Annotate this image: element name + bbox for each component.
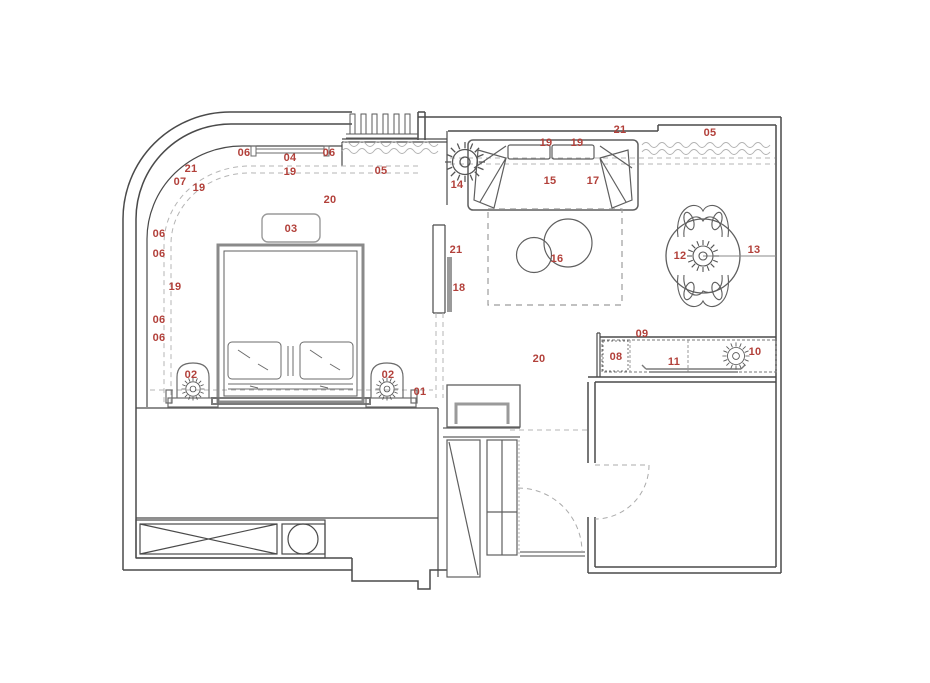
bed — [212, 245, 370, 404]
ceiling-light-icon — [722, 342, 749, 369]
washing-machine — [288, 524, 318, 554]
tv-panel — [447, 257, 452, 312]
dining-chair-bottom — [678, 275, 729, 307]
floor-plan-canvas: 0604061905210719200306061906060202011919… — [0, 0, 930, 683]
nightstand-right — [366, 363, 417, 407]
dining-set — [666, 205, 776, 306]
coffee-tables — [517, 219, 593, 273]
floor-plan-drawing — [0, 0, 930, 683]
kitchen-counter — [602, 340, 776, 372]
tall-cabinet-left — [447, 440, 480, 577]
radiator-icon — [346, 114, 418, 138]
wardrobe-rail — [251, 146, 329, 156]
sofa — [468, 140, 638, 210]
curtain-tracks — [150, 158, 775, 555]
curtain-wave-icon — [342, 142, 770, 155]
tall-cabinet-right — [487, 440, 517, 555]
interior-walls — [136, 131, 776, 577]
kitchen-shelf — [642, 365, 745, 372]
door-swing-icon — [518, 465, 649, 552]
console — [443, 385, 520, 437]
pillows — [228, 342, 353, 389]
wardrobe — [136, 520, 325, 558]
dining-chair-top — [678, 205, 729, 237]
bed-code-tag — [262, 214, 320, 242]
nightstand-left — [166, 363, 218, 407]
floor-lamp-radial-icon — [445, 142, 485, 182]
